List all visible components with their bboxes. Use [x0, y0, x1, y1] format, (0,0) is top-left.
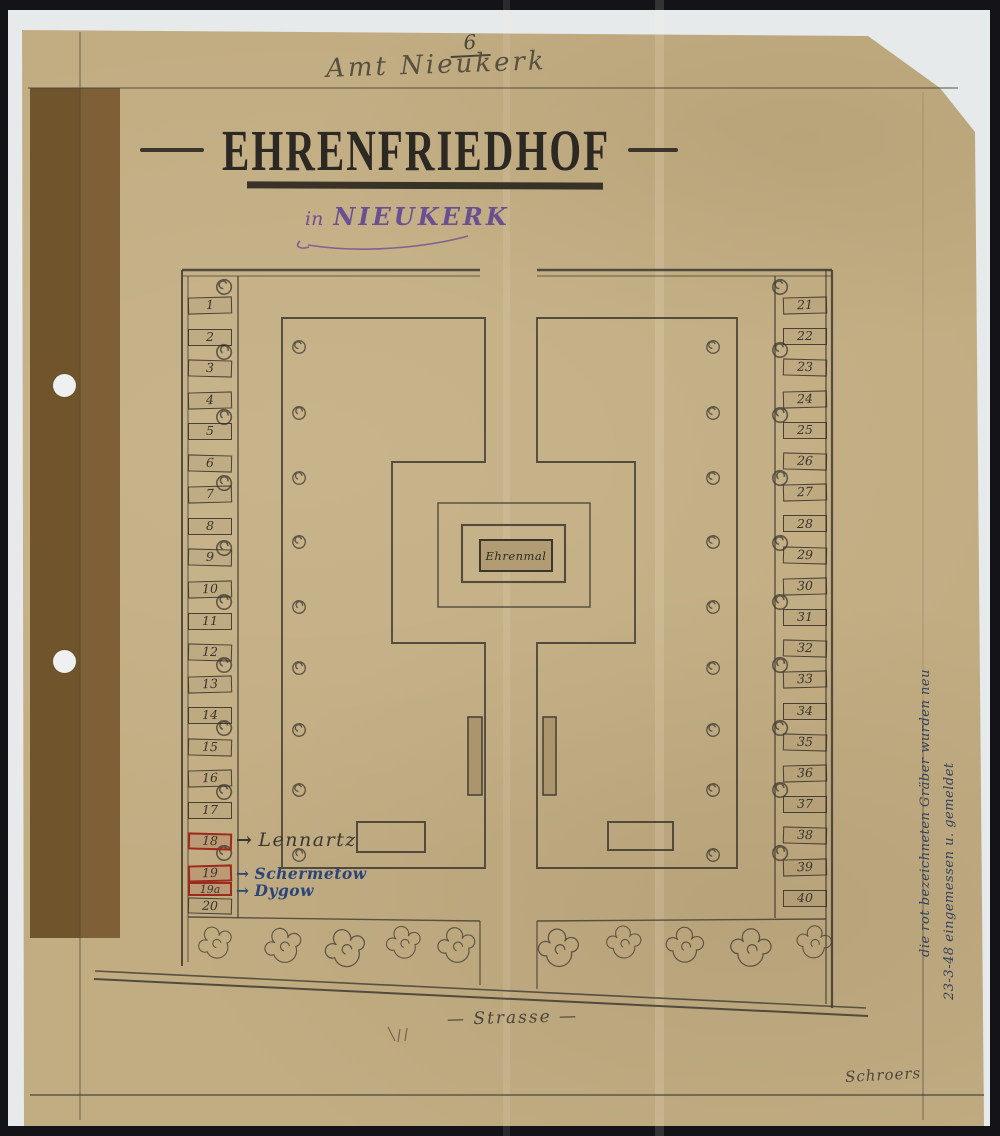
annotation-arrow-icon: →	[236, 881, 250, 900]
grave-number: 9	[206, 552, 214, 565]
grave-number: 27	[797, 486, 813, 499]
grave-box-19a: 19a	[188, 882, 232, 896]
grave-number: 22	[797, 330, 813, 343]
grave-name-annotation-Dygow: →Dygow	[236, 881, 314, 900]
grave-number: 8	[206, 520, 214, 533]
street-label: — Strasse —	[447, 1006, 579, 1029]
memorial-box: Ehrenmal	[479, 539, 553, 572]
grave-number: 19a	[200, 884, 221, 895]
grave-box-30: 30	[783, 577, 827, 595]
grave-box-10: 10	[188, 580, 232, 598]
grave-number: 6	[206, 457, 214, 470]
grave-number: 36	[797, 767, 813, 780]
grave-box-3: 3	[188, 360, 232, 378]
grave-number: 21	[797, 299, 813, 312]
grave-number: 39	[797, 861, 813, 874]
grave-box-31: 31	[783, 609, 827, 626]
grave-box-9: 9	[188, 549, 232, 567]
grave-box-34: 34	[783, 703, 827, 720]
grave-box-13: 13	[188, 675, 232, 693]
grave-number: 38	[797, 829, 813, 842]
grave-box-27: 27	[783, 484, 827, 502]
margin-note-line1: die rot bezeichneten Gräber wurden neu	[918, 752, 933, 957]
grave-box-22: 22	[783, 328, 827, 345]
annotation-name: Lennartz	[258, 829, 356, 851]
grave-number: 17	[202, 804, 218, 817]
grave-number: 37	[797, 798, 813, 811]
grave-box-21: 21	[783, 296, 827, 314]
grave-number: 16	[202, 772, 218, 785]
grave-number: 29	[797, 549, 813, 562]
grave-number: 32	[797, 642, 813, 655]
grave-number: 18	[202, 835, 218, 848]
grave-number: 28	[797, 518, 813, 531]
grave-box-11: 11	[188, 613, 232, 630]
grave-box-20: 20	[188, 897, 232, 914]
grave-box-39: 39	[783, 858, 827, 876]
grave-box-26: 26	[783, 452, 827, 470]
grave-number: 20	[202, 900, 218, 913]
grave-box-14: 14	[188, 707, 232, 724]
grave-box-32: 32	[783, 640, 827, 658]
grave-box-7: 7	[188, 486, 232, 504]
grave-box-8: 8	[188, 518, 232, 535]
grave-box-24: 24	[783, 390, 827, 408]
grave-number: 4	[206, 394, 214, 407]
grave-box-2: 2	[188, 329, 232, 346]
grave-number: 26	[797, 455, 813, 468]
grave-number: 35	[797, 736, 813, 749]
margin-note-line2: 23-3-48 eingemessen u. gemeldet	[942, 763, 957, 1000]
grave-box-38: 38	[783, 827, 827, 845]
grave-box-36: 36	[783, 764, 827, 782]
grave-number: 1	[206, 299, 214, 312]
grave-number: 34	[797, 705, 813, 718]
grave-box-19: 19	[188, 864, 232, 882]
grave-number: 10	[202, 583, 218, 596]
grave-number: 14	[202, 709, 218, 722]
grave-box-28: 28	[783, 515, 827, 532]
grave-box-17: 17	[188, 802, 232, 819]
grave-number: 13	[202, 678, 218, 691]
grave-number: 15	[202, 741, 218, 754]
grave-box-23: 23	[783, 359, 827, 377]
grave-number: 31	[797, 611, 813, 624]
grave-number: 3	[206, 362, 214, 375]
grave-box-15: 15	[188, 738, 232, 756]
memorial-label: Ehrenmal	[486, 549, 547, 563]
grave-number: 11	[202, 615, 218, 628]
grave-box-40: 40	[783, 890, 827, 907]
grave-box-25: 25	[783, 422, 827, 439]
grave-box-35: 35	[783, 733, 827, 751]
grave-box-37: 37	[783, 796, 827, 813]
grave-number: 2	[206, 331, 214, 344]
grave-number: 30	[797, 580, 813, 593]
grave-box-16: 16	[188, 770, 232, 788]
grave-box-5: 5	[188, 423, 232, 440]
grave-number: 33	[797, 673, 813, 686]
grave-number: 24	[797, 393, 813, 406]
grave-number: 5	[206, 425, 214, 438]
grave-box-1: 1	[188, 296, 232, 314]
grave-name-annotation-Lennartz: →Lennartz	[236, 829, 357, 851]
grave-box-12: 12	[188, 643, 232, 661]
grave-number: 19	[202, 867, 218, 880]
annotation-name: Dygow	[255, 881, 314, 900]
grave-box-33: 33	[783, 671, 827, 689]
grave-number: 7	[206, 488, 214, 501]
annotation-arrow-icon: →	[236, 829, 253, 851]
grave-box-6: 6	[188, 454, 232, 472]
grave-number: 23	[797, 361, 813, 374]
grave-box-29: 29	[783, 546, 827, 564]
grave-box-4: 4	[188, 391, 232, 409]
grave-number: 40	[797, 892, 813, 905]
grave-number: 25	[797, 424, 813, 437]
grave-box-18: 18	[188, 833, 232, 851]
grave-number: 12	[202, 646, 218, 659]
